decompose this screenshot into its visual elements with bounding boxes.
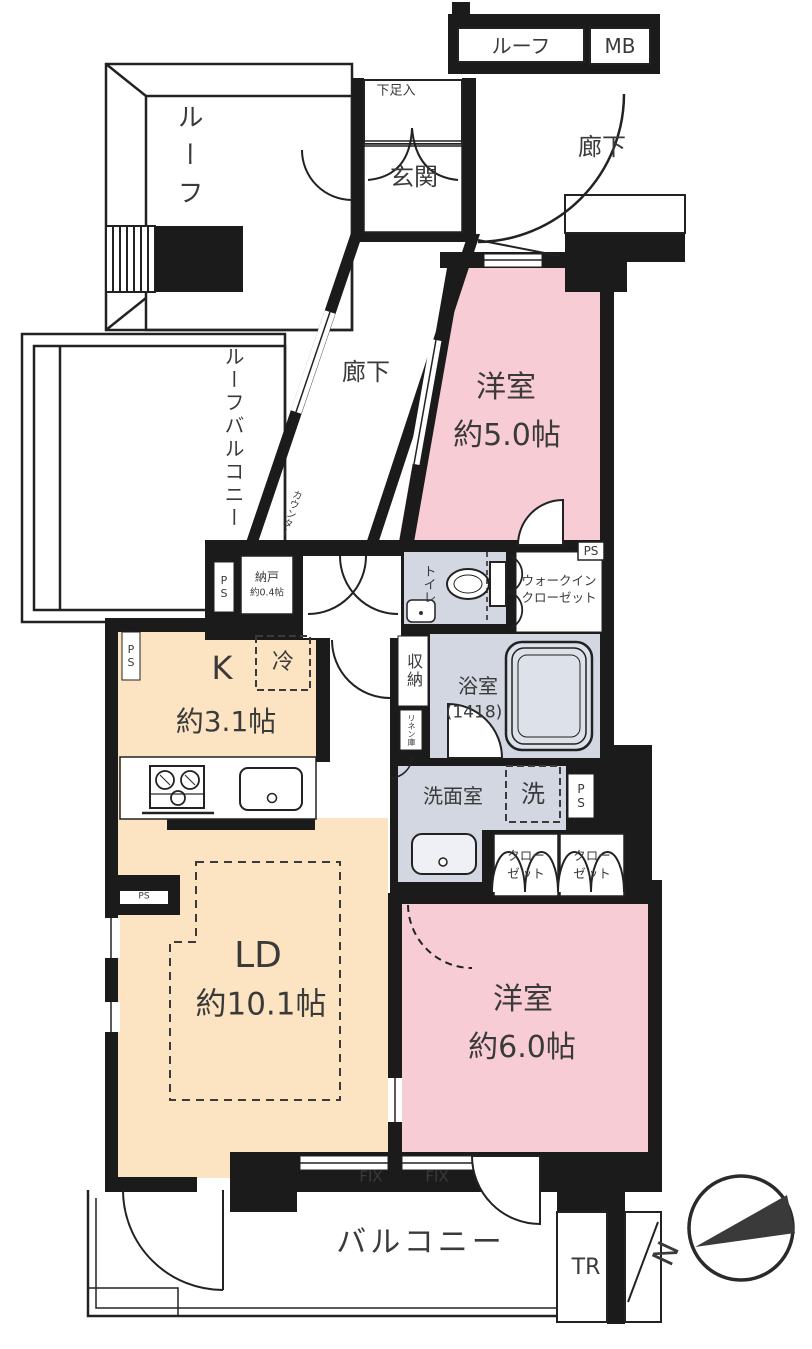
closet2-label-2: ゼット [573,868,611,881]
bathtub-icon [506,642,592,750]
ld-size-label: 約10.1帖 [195,990,326,1021]
roof-top-label: ルーフ [492,36,551,56]
compass-icon [689,1176,795,1280]
western6-size-label: 約6.0帖 [468,1033,576,1063]
storage-size-label: 約0.4帖 [250,588,284,598]
roof-balcony-label: ルーフバルコニー [223,346,243,530]
western5-size-label: 約5.0帖 [453,421,561,451]
floor-plan: ルーフ MB ルーフ 下足入 玄関 廊下 廊下 ルーフバルコニー カウンター 納… [0,0,812,1349]
fridge-label: 冷 [272,652,294,674]
western5-name-label: 洋室 [476,373,536,403]
closet1-label-2: ゼット [507,868,545,881]
kitchen-sink-icon [240,768,302,810]
fix2-label: FIX [425,1170,448,1185]
closet2-label-1: クロー [573,850,611,863]
shoe-box-label: 下足入 [376,85,415,98]
ps-a-label: PS [219,574,230,600]
ps-b-label: PS [584,545,599,557]
wic-label-1: ウォークイン [521,575,596,588]
fix1-label: FIX [359,1170,382,1185]
wic-label-2: クローゼット [521,592,596,605]
shuno-label: 収納 [405,653,421,689]
hallway-top-label: 廊下 [578,135,626,159]
tr-label: TR [572,1257,601,1279]
ps-d-label: PS [575,782,587,810]
washstand-icon [412,834,476,874]
washer-label: 洗 [521,782,545,806]
roof-left-label: ルーフ [175,103,201,217]
bath-name-label: 浴室 [458,676,498,696]
toilet-label: トイレ [422,565,435,604]
closet1-label-1: クロー [507,850,545,863]
bath-size-label: (1418) [446,705,503,722]
ld-name-label: LD [234,938,282,974]
washroom-label: 洗面室 [423,786,483,806]
kitchen-name-label: K [212,652,233,684]
roof-hatch [106,226,243,292]
western6-name-label: 洋室 [493,985,553,1015]
hallway-mid-label: 廊下 [342,360,390,384]
linen-label: リネン庫 [407,714,415,746]
storage-name-label: 納戸 [255,571,279,583]
entrance-label: 玄関 [390,165,438,189]
stove-icon [142,766,214,813]
ps-c-label: PS [126,643,137,669]
ps-e-label: PS [138,893,149,902]
balcony-label: バルコニー [336,1228,505,1258]
mb-label: MB [605,36,636,56]
kitchen-size-label: 約3.1帖 [176,708,277,736]
